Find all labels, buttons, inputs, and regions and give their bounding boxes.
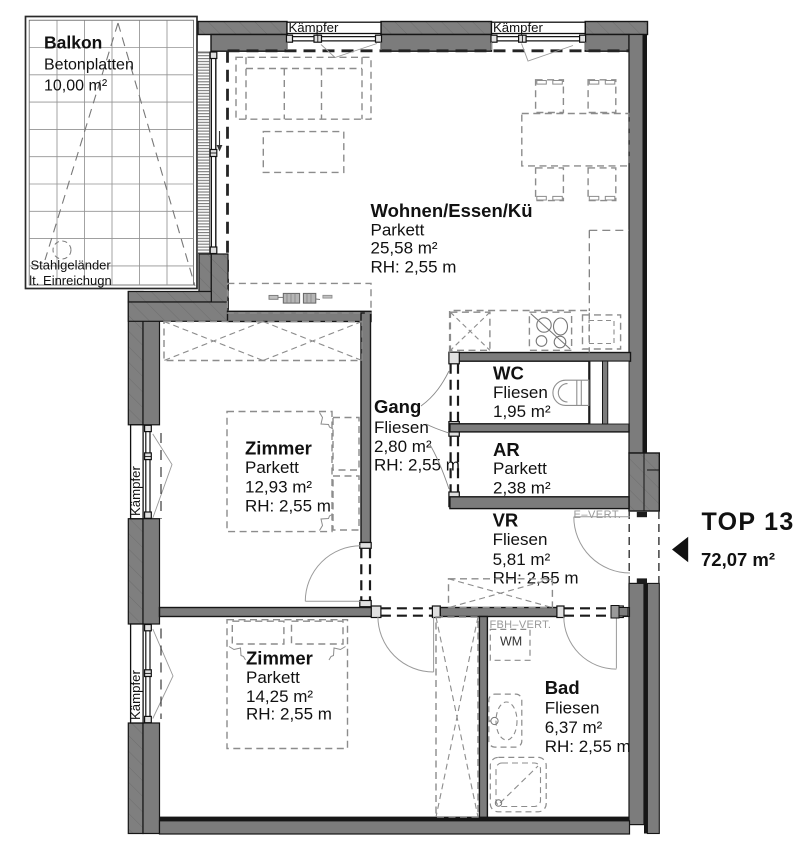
- svg-text:12,93 m²: 12,93 m²: [245, 478, 312, 497]
- svg-text:Parkett: Parkett: [245, 458, 299, 477]
- svg-text:Kämpfer: Kämpfer: [289, 20, 339, 35]
- svg-text:Kämpfer: Kämpfer: [493, 20, 543, 35]
- svg-text:Fliesen: Fliesen: [545, 699, 600, 718]
- svg-text:Bad: Bad: [545, 677, 580, 698]
- svg-text:RH: 2,55 m: RH: 2,55 m: [374, 456, 460, 475]
- svg-text:TOP 13: TOP 13: [702, 508, 795, 536]
- svg-text:Wohnen/Essen/Kü: Wohnen/Essen/Kü: [371, 200, 533, 221]
- svg-text:Kämpfer: Kämpfer: [128, 670, 143, 720]
- svg-text:Zimmer: Zimmer: [245, 438, 312, 459]
- svg-text:2,80 m²: 2,80 m²: [374, 437, 432, 456]
- svg-text:E–VERT.: E–VERT.: [574, 509, 622, 521]
- svg-text:Zimmer: Zimmer: [246, 648, 313, 669]
- svg-text:72,07 m²: 72,07 m²: [701, 549, 775, 570]
- svg-text:5,81 m²: 5,81 m²: [493, 550, 551, 569]
- svg-text:Parkett: Parkett: [246, 668, 300, 687]
- svg-text:Parkett: Parkett: [371, 221, 425, 240]
- svg-text:2,38 m²: 2,38 m²: [493, 479, 551, 498]
- svg-text:10,00 m²: 10,00 m²: [44, 78, 108, 95]
- svg-text:14,25 m²: 14,25 m²: [246, 687, 313, 706]
- svg-text:Kämpfer: Kämpfer: [128, 466, 143, 516]
- svg-text:lt. Einreichugn: lt. Einreichugn: [29, 273, 111, 288]
- svg-text:Balkon: Balkon: [44, 33, 102, 53]
- svg-text:RH: 2,55 m: RH: 2,55 m: [493, 569, 579, 588]
- svg-text:Gang: Gang: [374, 396, 421, 417]
- svg-text:Parkett: Parkett: [493, 459, 547, 478]
- svg-text:Betonplatten: Betonplatten: [44, 57, 134, 74]
- svg-text:WC: WC: [493, 363, 524, 384]
- svg-text:Stahlgeländer: Stahlgeländer: [31, 258, 112, 273]
- svg-text:VR: VR: [493, 510, 519, 531]
- svg-text:RH: 2,55 m: RH: 2,55 m: [246, 705, 332, 724]
- svg-text:RH: 2,55 m: RH: 2,55 m: [245, 497, 331, 516]
- svg-text:Fliesen: Fliesen: [493, 530, 548, 549]
- svg-text:RH: 2,55 m: RH: 2,55 m: [371, 258, 457, 277]
- svg-text:1,95 m²: 1,95 m²: [493, 402, 551, 421]
- svg-text:Fliesen: Fliesen: [374, 418, 429, 437]
- svg-text:RH: 2,55 m: RH: 2,55 m: [545, 737, 631, 756]
- svg-text:6,37 m²: 6,37 m²: [545, 718, 603, 737]
- svg-text:Fliesen: Fliesen: [493, 383, 548, 402]
- svg-text:AR: AR: [493, 439, 520, 460]
- svg-text:25,58 m²: 25,58 m²: [371, 239, 438, 258]
- svg-text:WM: WM: [500, 635, 522, 649]
